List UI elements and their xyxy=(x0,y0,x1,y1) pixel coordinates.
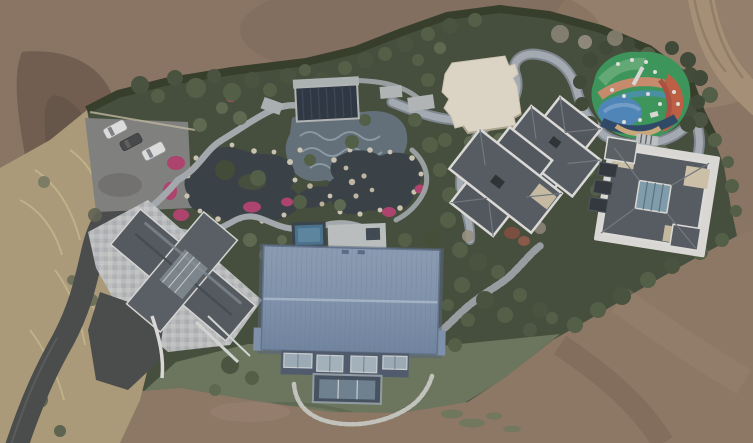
aerial-photo xyxy=(0,0,753,443)
photo-grain xyxy=(0,0,753,443)
aerial-photo-canvas xyxy=(0,0,753,443)
